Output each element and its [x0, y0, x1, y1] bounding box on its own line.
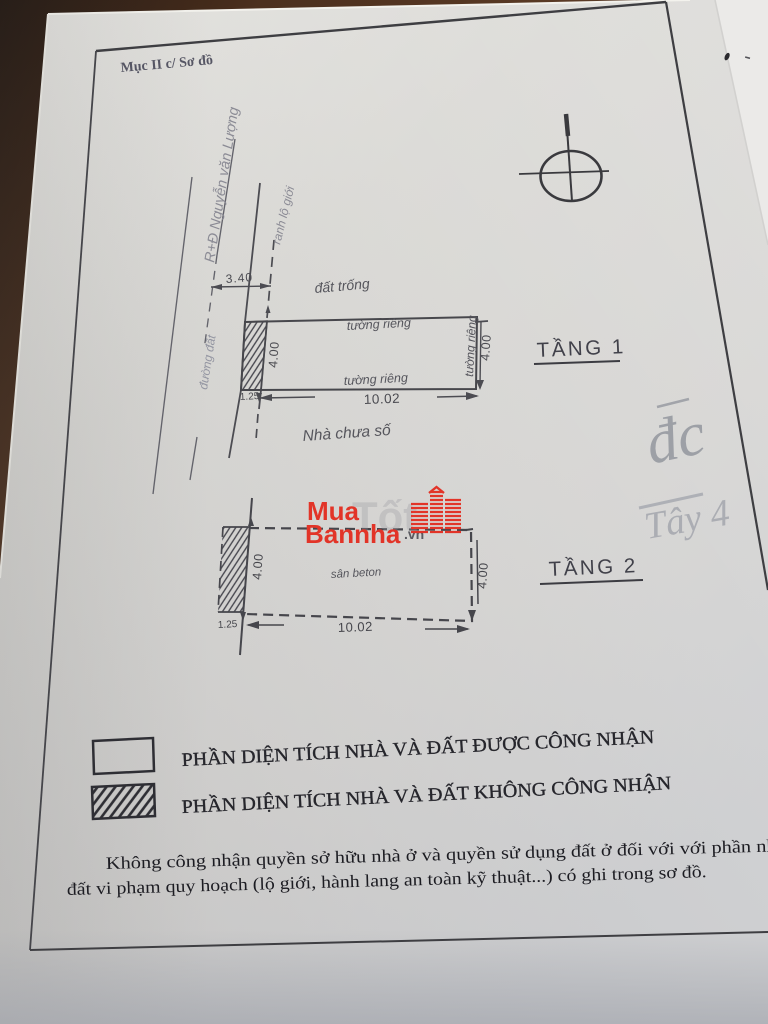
svg-text:TẦNG 1: TẦNG 1 [536, 335, 626, 362]
svg-text:Bannha: Bannha [305, 519, 401, 549]
svg-text:4.00: 4.00 [475, 562, 491, 589]
svg-text:1.25: 1.25 [218, 619, 238, 631]
svg-text:4.00: 4.00 [478, 334, 494, 361]
svg-text:4.00: 4.00 [250, 553, 266, 580]
svg-text:4.00: 4.00 [266, 341, 282, 368]
svg-text:10.02: 10.02 [338, 619, 374, 635]
svg-text:3.40: 3.40 [225, 270, 253, 286]
svg-text:1.25: 1.25 [240, 391, 260, 403]
svg-text:TẦNG 2: TẦNG 2 [548, 554, 638, 581]
svg-text:10.02: 10.02 [364, 391, 401, 407]
